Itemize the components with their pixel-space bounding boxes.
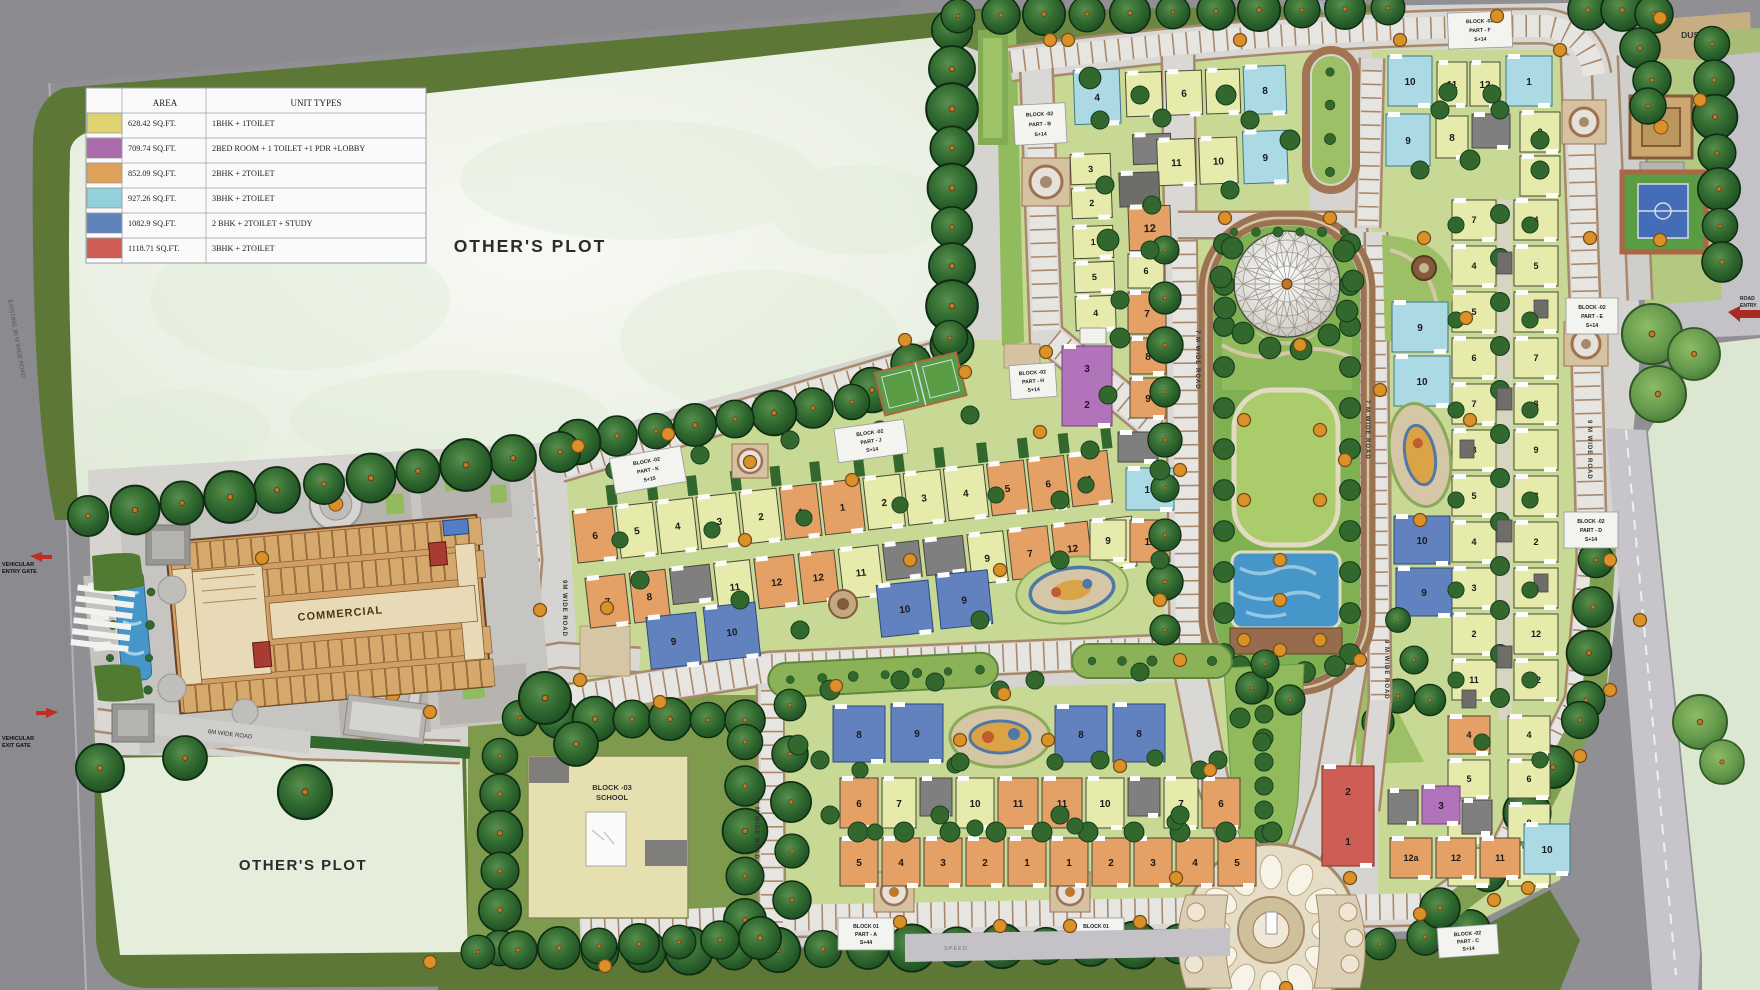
svg-text:4: 4 xyxy=(1094,93,1100,104)
svg-text:S+14: S+14 xyxy=(1462,946,1475,953)
svg-text:6: 6 xyxy=(1471,353,1476,363)
svg-text:12a: 12a xyxy=(1403,853,1419,863)
svg-text:SCHOOL: SCHOOL xyxy=(596,793,629,802)
svg-text:9: 9 xyxy=(1417,323,1423,334)
svg-text:10: 10 xyxy=(969,799,981,810)
svg-text:8: 8 xyxy=(1078,730,1084,741)
svg-text:927.26 SQ.FT.: 927.26 SQ.FT. xyxy=(128,194,176,203)
svg-text:5: 5 xyxy=(1471,491,1476,501)
svg-text:3: 3 xyxy=(1150,858,1156,869)
svg-text:11: 11 xyxy=(1013,799,1024,810)
svg-text:8: 8 xyxy=(1262,86,1268,97)
svg-text:7 M WIDE ROAD: 7 M WIDE ROAD xyxy=(1194,330,1200,390)
svg-text:1082.9 SQ.FT.: 1082.9 SQ.FT. xyxy=(128,219,176,228)
svg-text:BLOCK -02: BLOCK -02 xyxy=(1577,519,1604,525)
svg-text:3: 3 xyxy=(1088,164,1093,174)
svg-text:5: 5 xyxy=(1533,261,1538,271)
svg-text:12: 12 xyxy=(812,572,825,584)
svg-text:PART - D: PART - D xyxy=(1580,528,1602,534)
svg-text:3: 3 xyxy=(940,858,946,869)
svg-text:10: 10 xyxy=(1404,77,1416,88)
svg-text:8: 8 xyxy=(1136,729,1142,740)
svg-text:4: 4 xyxy=(1526,730,1531,740)
svg-text:8: 8 xyxy=(856,730,862,741)
svg-text:9: 9 xyxy=(1533,445,1538,455)
svg-text:10: 10 xyxy=(726,627,739,639)
svg-text:PART - A: PART - A xyxy=(855,932,877,938)
svg-text:9 M WIDE ROAD: 9 M WIDE ROAD xyxy=(1586,420,1592,480)
svg-text:6: 6 xyxy=(1181,89,1187,100)
svg-text:2BED ROOM + 1 TOILET +1 PDR +L: 2BED ROOM + 1 TOILET +1 PDR +LOBBY xyxy=(212,144,365,153)
svg-text:OTHER'S PLOT: OTHER'S PLOT xyxy=(239,857,367,874)
svg-text:3BHK + 2TOILET: 3BHK + 2TOILET xyxy=(212,244,275,253)
svg-text:709.74 SQ.FT.: 709.74 SQ.FT. xyxy=(128,144,176,153)
svg-text:4: 4 xyxy=(898,858,904,869)
svg-text:ENTRY GATE: ENTRY GATE xyxy=(2,569,37,575)
svg-text:OTHER'S PLOT: OTHER'S PLOT xyxy=(454,236,607,256)
svg-text:12: 12 xyxy=(771,577,784,589)
svg-text:2: 2 xyxy=(1471,629,1476,639)
svg-text:ENTRY: ENTRY xyxy=(1740,303,1757,309)
svg-text:4: 4 xyxy=(1093,308,1098,318)
svg-text:BLOCK -03: BLOCK -03 xyxy=(592,783,632,792)
svg-text:10: 10 xyxy=(1416,536,1428,547)
svg-text:3: 3 xyxy=(1438,801,1444,812)
svg-text:9: 9 xyxy=(1405,136,1411,147)
svg-text:2: 2 xyxy=(1084,400,1090,411)
svg-text:12: 12 xyxy=(1531,629,1541,639)
svg-text:7: 7 xyxy=(896,799,902,810)
svg-text:1: 1 xyxy=(1066,858,1072,869)
svg-text:1: 1 xyxy=(1526,77,1532,88)
svg-text:9: 9 xyxy=(1262,153,1268,164)
svg-text:S+44: S+44 xyxy=(860,940,872,946)
svg-text:12: 12 xyxy=(1067,543,1080,555)
svg-text:11: 11 xyxy=(855,567,867,579)
svg-text:UNIT TYPES: UNIT TYPES xyxy=(291,98,342,108)
svg-text:6: 6 xyxy=(856,799,862,810)
svg-text:ROAD: ROAD xyxy=(1740,296,1755,302)
svg-text:3BHK + 2TOILET: 3BHK + 2TOILET xyxy=(212,194,275,203)
svg-text:852.09 SQ.FT.: 852.09 SQ.FT. xyxy=(128,169,176,178)
svg-text:S+14: S+14 xyxy=(1027,387,1040,394)
svg-text:1BHK + 1TOILET: 1BHK + 1TOILET xyxy=(212,119,275,128)
svg-text:12: 12 xyxy=(1451,853,1461,863)
svg-text:1: 1 xyxy=(1090,237,1095,247)
svg-text:9 M WIDE ROAD: 9 M WIDE ROAD xyxy=(1383,640,1389,700)
svg-text:10: 10 xyxy=(899,604,912,616)
svg-text:1: 1 xyxy=(1024,858,1030,869)
svg-text:PART - B: PART - B xyxy=(1029,121,1052,128)
svg-text:9M WIDE ROAD: 9M WIDE ROAD xyxy=(561,580,567,637)
svg-text:1: 1 xyxy=(1345,837,1351,848)
svg-text:7: 7 xyxy=(1471,399,1476,409)
svg-text:10: 10 xyxy=(1213,156,1225,167)
svg-text:10: 10 xyxy=(1416,377,1428,388)
svg-text:2: 2 xyxy=(1533,537,1538,547)
svg-text:2: 2 xyxy=(1089,198,1094,208)
svg-text:PART - E: PART - E xyxy=(1581,314,1603,320)
svg-text:6: 6 xyxy=(1218,799,1224,810)
svg-text:4: 4 xyxy=(1466,730,1471,740)
svg-text:1118.71 SQ.FT.: 1118.71 SQ.FT. xyxy=(128,244,180,253)
svg-text:VEHICULAR: VEHICULAR xyxy=(2,736,34,742)
svg-text:S+14: S+14 xyxy=(1474,37,1487,43)
svg-text:2BHK + 2TOILET: 2BHK + 2TOILET xyxy=(212,169,275,178)
svg-text:10: 10 xyxy=(1099,799,1111,810)
svg-text:6: 6 xyxy=(1526,774,1531,784)
svg-text:11: 11 xyxy=(1171,158,1182,169)
svg-text:9 M WIDE ROAD: 9 M WIDE ROAD xyxy=(753,800,759,860)
svg-text:S+14: S+14 xyxy=(1585,537,1597,543)
svg-text:3: 3 xyxy=(1471,583,1476,593)
svg-text:EXIT GATE: EXIT GATE xyxy=(2,743,31,749)
svg-text:PART - F: PART - F xyxy=(1469,27,1491,34)
svg-text:9: 9 xyxy=(914,729,920,740)
svg-text:10: 10 xyxy=(1541,845,1553,856)
svg-text:7 M WIDE ROAD: 7 M WIDE ROAD xyxy=(1364,400,1370,460)
svg-text:BLOCK -02: BLOCK -02 xyxy=(1578,305,1605,311)
svg-text:S+14: S+14 xyxy=(1034,131,1047,138)
svg-text:2: 2 xyxy=(1108,858,1114,869)
svg-text:11: 11 xyxy=(1469,675,1479,685)
svg-text:11: 11 xyxy=(1495,853,1505,863)
svg-text:2: 2 xyxy=(982,858,988,869)
svg-text:9: 9 xyxy=(1105,536,1111,547)
svg-text:5: 5 xyxy=(856,858,862,869)
svg-text:AREA: AREA xyxy=(153,98,178,108)
svg-text:2 BHK + 2TOILET + STUDY: 2 BHK + 2TOILET + STUDY xyxy=(212,219,313,228)
svg-text:4: 4 xyxy=(1471,537,1476,547)
svg-text:5: 5 xyxy=(1234,858,1240,869)
svg-text:6: 6 xyxy=(1143,266,1148,276)
svg-text:8: 8 xyxy=(1449,133,1455,144)
svg-text:12: 12 xyxy=(1143,223,1156,235)
svg-text:BLOCK 01: BLOCK 01 xyxy=(1083,924,1109,930)
svg-text:5: 5 xyxy=(1466,774,1471,784)
svg-text:7: 7 xyxy=(1144,309,1150,320)
svg-text:628.42 SQ.FT.: 628.42 SQ.FT. xyxy=(128,119,176,128)
svg-text:7: 7 xyxy=(1533,353,1538,363)
svg-text:7: 7 xyxy=(1471,215,1476,225)
svg-text:BLOCK -02: BLOCK -02 xyxy=(1466,18,1494,25)
svg-text:4: 4 xyxy=(1192,858,1198,869)
svg-text:2: 2 xyxy=(1345,787,1351,798)
svg-text:4: 4 xyxy=(1471,261,1476,271)
svg-text:SPEED: SPEED xyxy=(944,946,968,952)
svg-text:BLOCK 01: BLOCK 01 xyxy=(853,924,879,930)
svg-text:VEHICULAR: VEHICULAR xyxy=(2,562,34,568)
svg-text:5: 5 xyxy=(1092,272,1097,282)
svg-text:9: 9 xyxy=(1421,588,1427,599)
svg-text:S+14: S+14 xyxy=(1586,323,1598,329)
svg-text:3: 3 xyxy=(1084,364,1090,375)
